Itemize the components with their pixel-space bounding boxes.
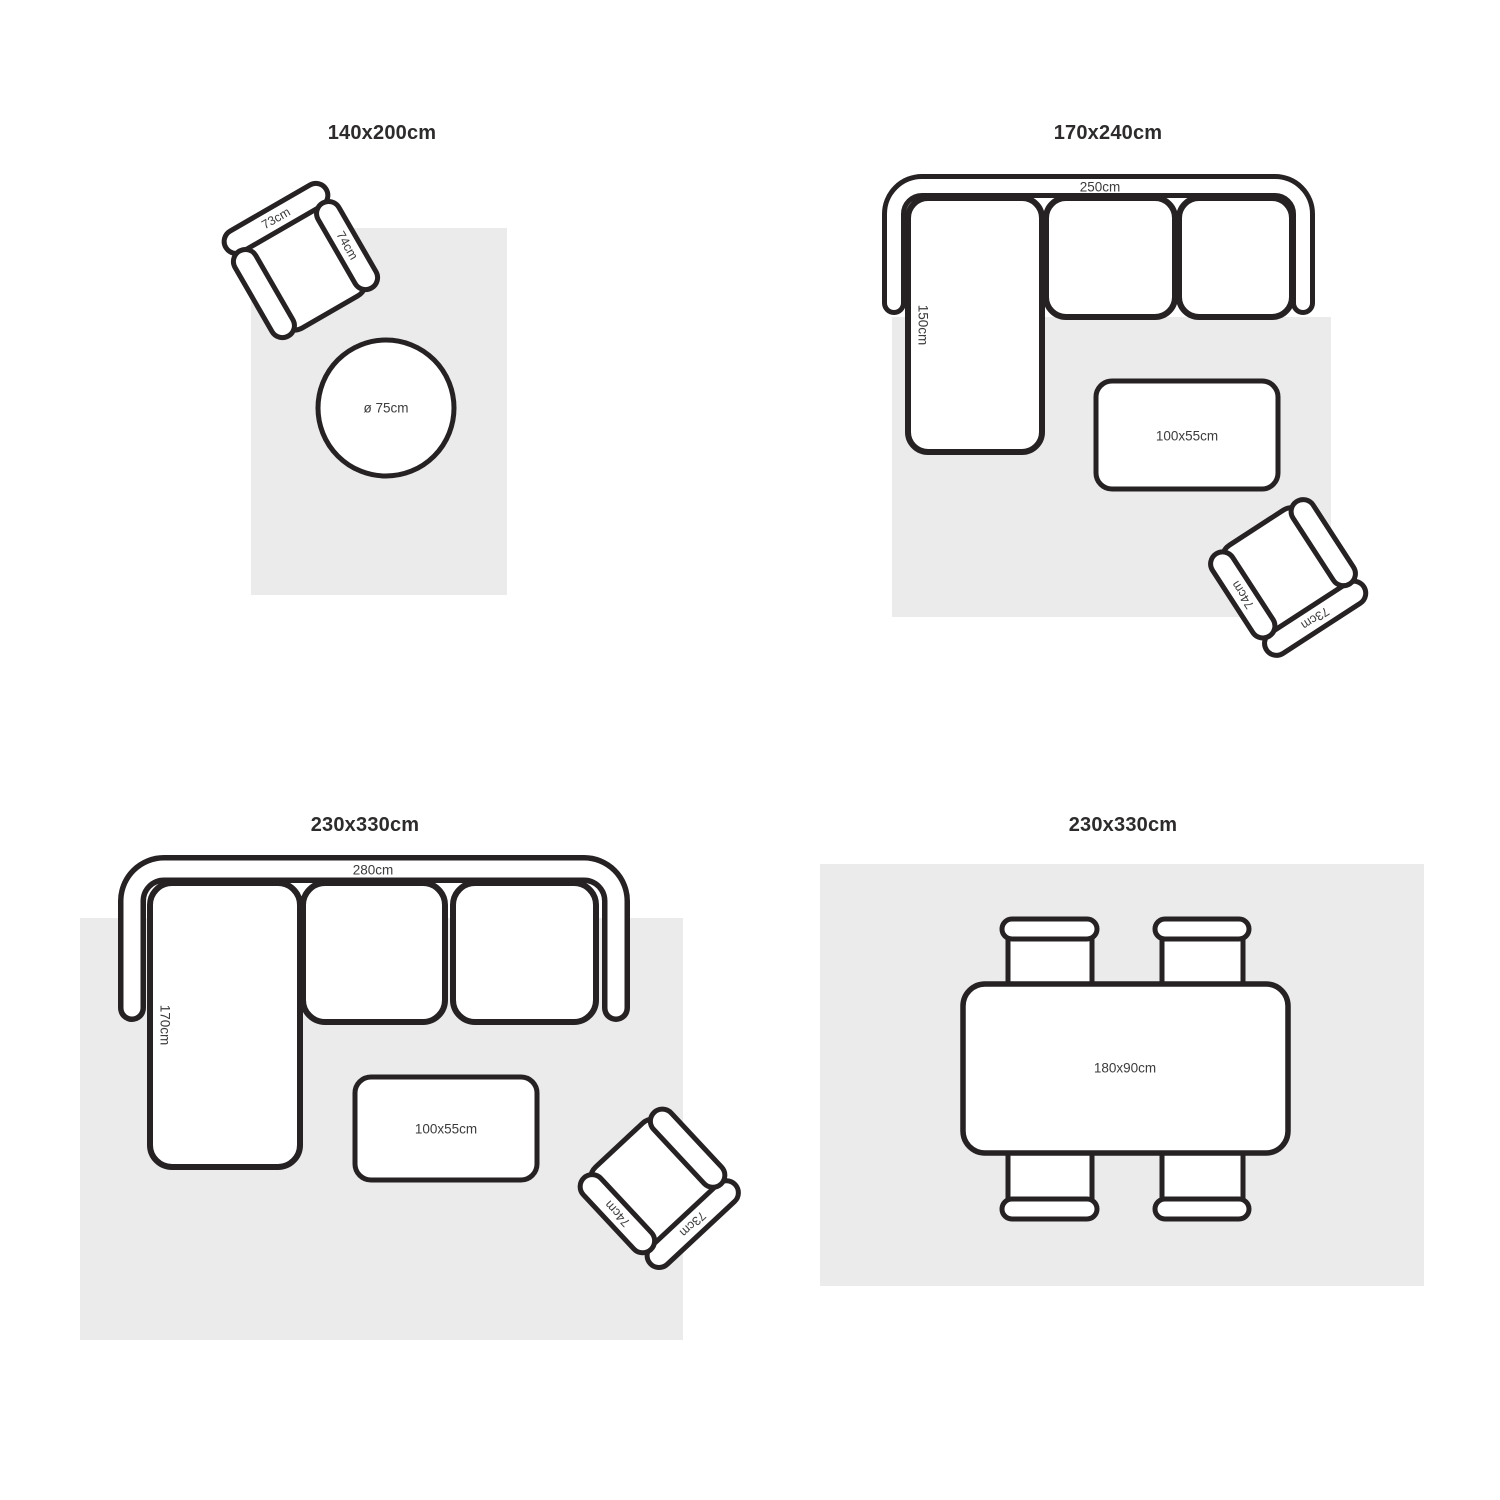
dining-table-dimension: 180x90cm	[1094, 1061, 1156, 1076]
layout-230x330-dining: 230x330cm 180x90cm	[820, 814, 1424, 1286]
layout-230x330-sofa: 230x330cm 280cm 170cm 100x55cm 73cm 74cm	[80, 814, 745, 1340]
round-table-dimension: ø 75cm	[363, 401, 408, 416]
rug-size-guide-canvas: 140x200cm 73cm 74cm ø 75cm 170x240cm 250…	[0, 0, 1500, 1500]
layout-title: 170x240cm	[1054, 122, 1163, 144]
layout-title: 140x200cm	[328, 122, 437, 144]
sofa-seat-cushion	[1179, 198, 1292, 317]
dining-chair-backrest	[1155, 1199, 1249, 1219]
layout-title: 230x330cm	[1069, 814, 1178, 836]
layout-140x200: 140x200cm 73cm 74cm ø 75cm	[218, 122, 507, 595]
layout-170x240: 170x240cm 250cm 150cm 100x55cm 73cm 74cm	[892, 122, 1372, 661]
sofa-depth-dimension: 150cm	[916, 305, 931, 346]
dining-chair-backrest	[1002, 1199, 1097, 1219]
layout-title: 230x330cm	[311, 814, 420, 836]
dining-chair-backrest	[1002, 919, 1097, 939]
sofa-seat-cushion	[453, 883, 596, 1022]
coffee-table-dimension: 100x55cm	[1156, 429, 1218, 444]
sofa-depth-dimension: 170cm	[158, 1005, 173, 1046]
coffee-table-dimension: 100x55cm	[415, 1122, 477, 1137]
sofa-seat-cushion	[303, 883, 445, 1022]
sofa-seat-cushion	[1046, 198, 1175, 317]
sofa-width-dimension: 250cm	[1080, 180, 1121, 195]
sofa-width-dimension: 280cm	[353, 863, 394, 878]
dining-chair-backrest	[1155, 919, 1249, 939]
rug-size-guide: 140x200cm 73cm 74cm ø 75cm 170x240cm 250…	[0, 0, 1500, 1500]
